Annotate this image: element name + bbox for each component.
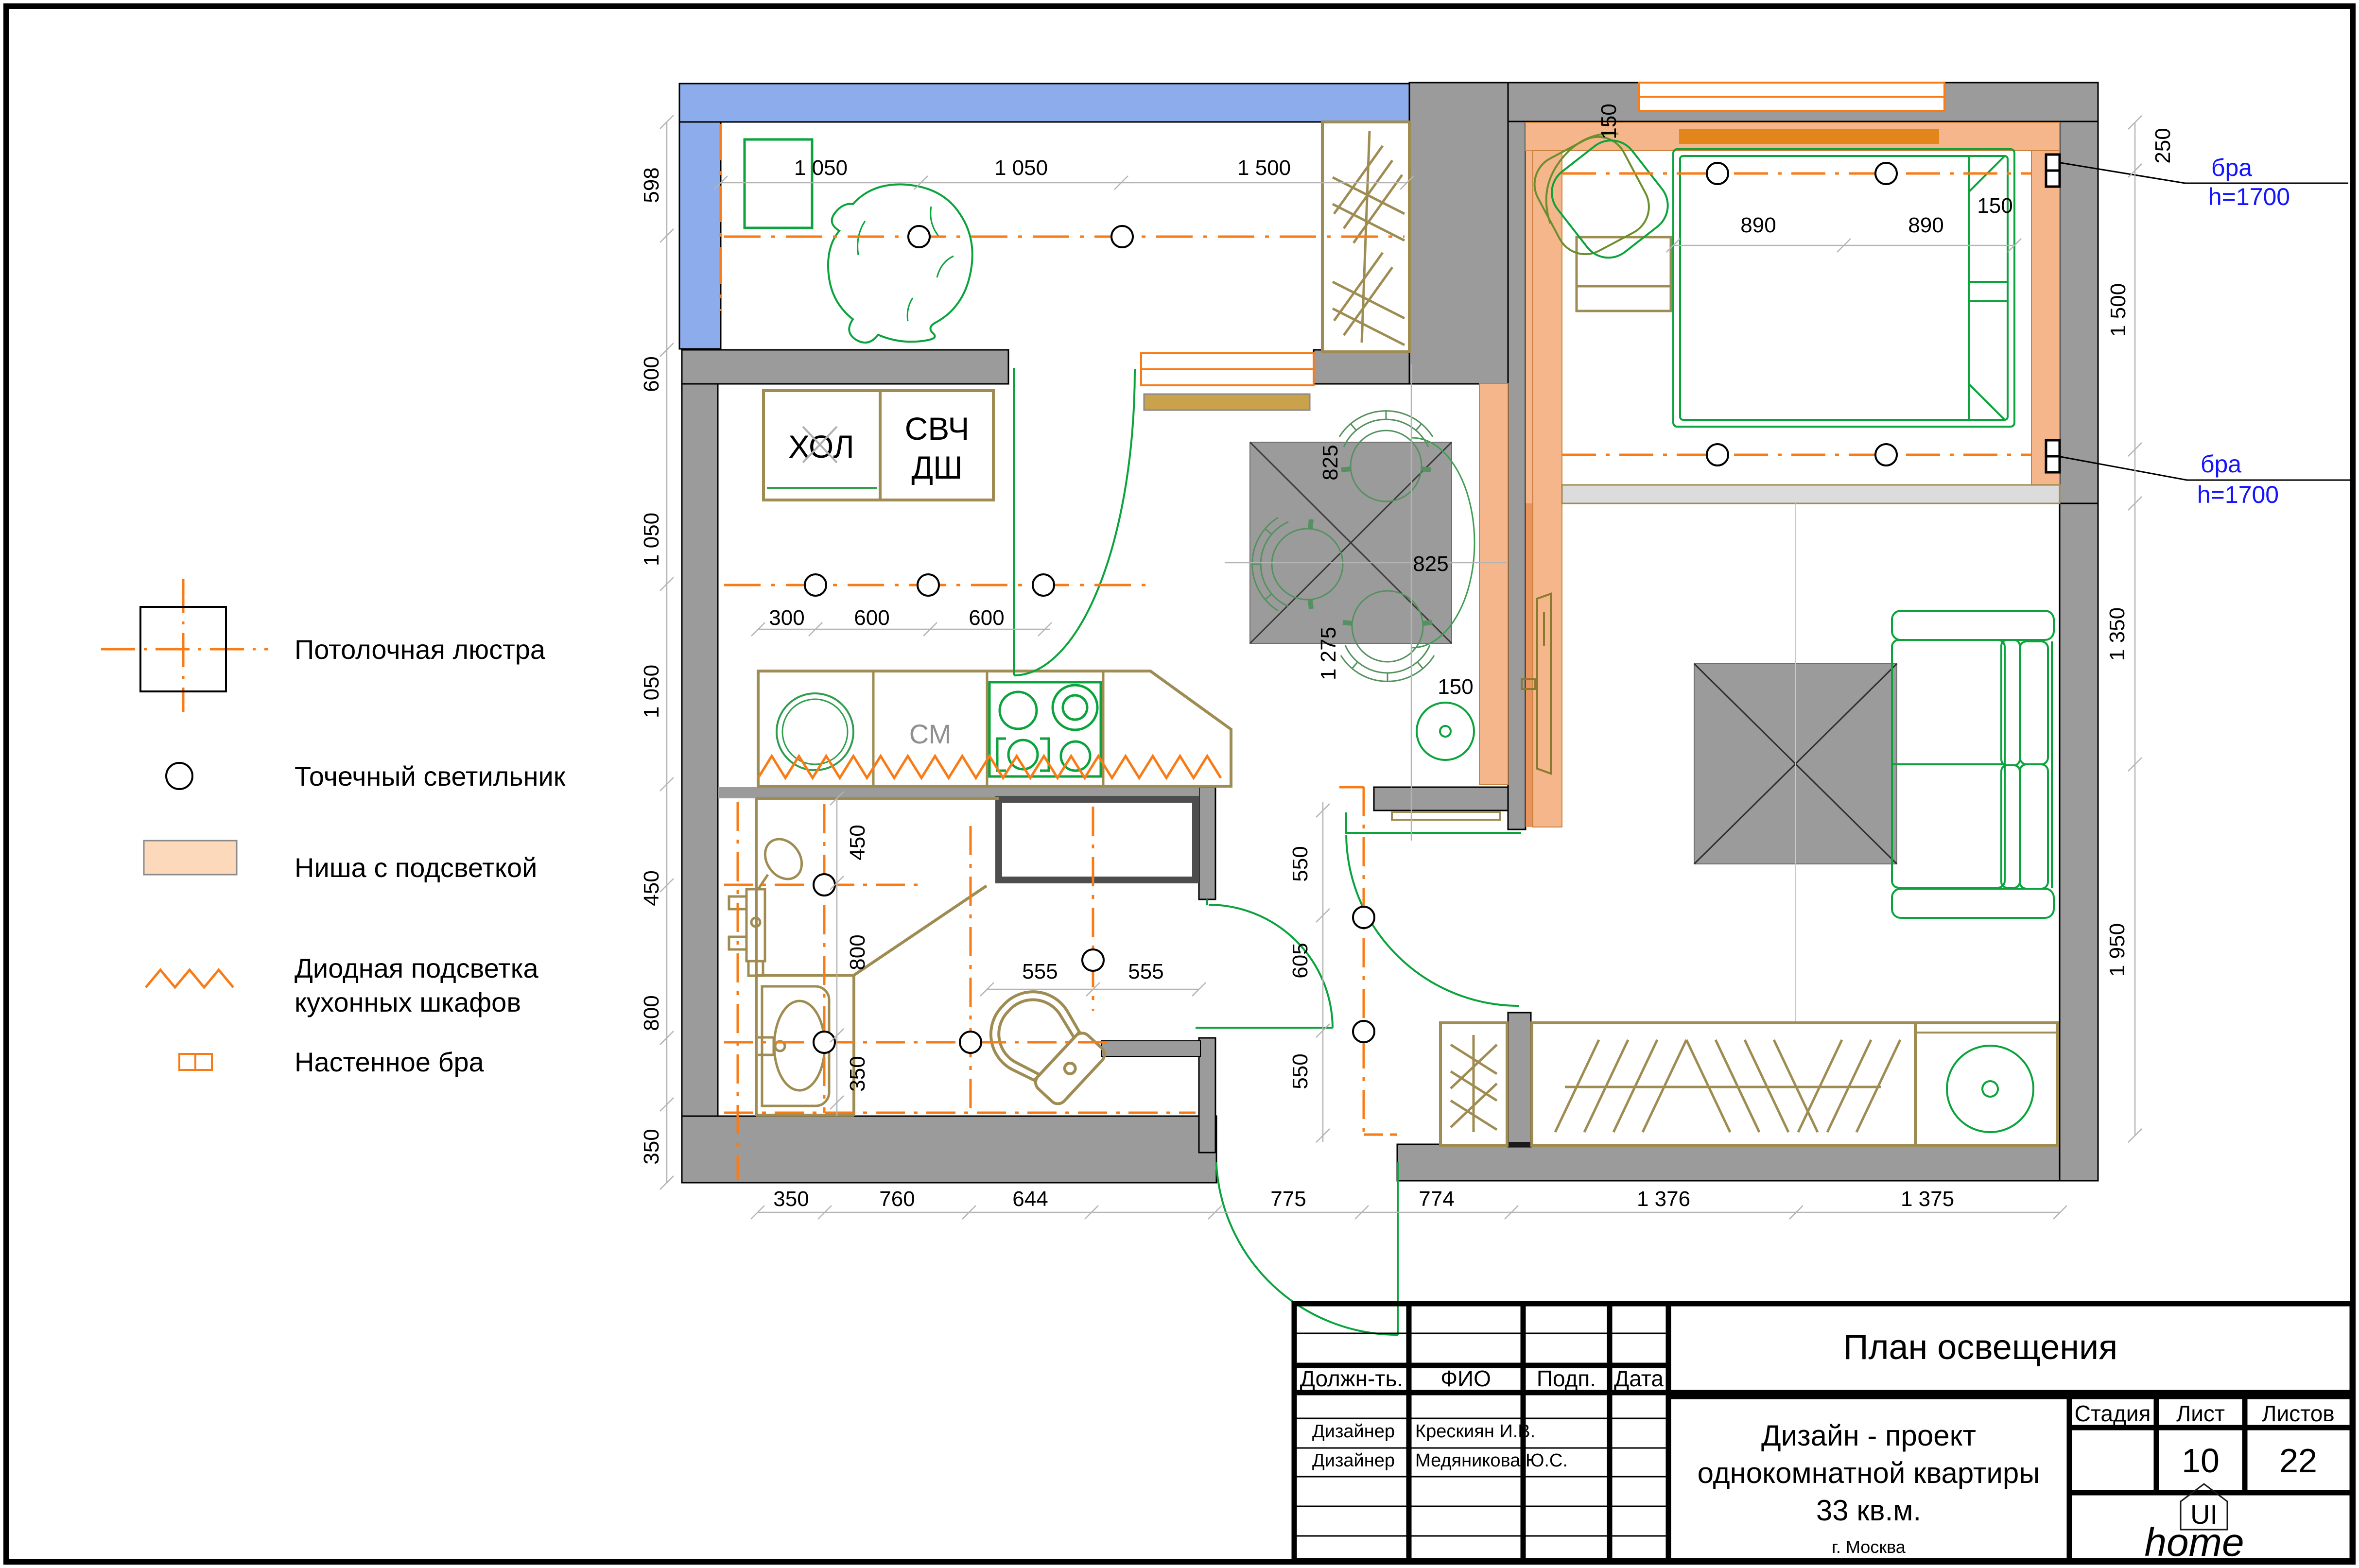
- svg-text:800: 800: [846, 934, 869, 970]
- svg-text:644: 644: [1012, 1187, 1048, 1211]
- svg-text:1 050: 1 050: [794, 156, 848, 180]
- svg-text:555: 555: [1128, 960, 1163, 983]
- svg-text:1 050: 1 050: [640, 665, 663, 718]
- svg-text:бра: бра: [2201, 450, 2241, 478]
- svg-text:1 275: 1 275: [1317, 627, 1340, 680]
- svg-text:1 350: 1 350: [2105, 607, 2129, 661]
- svg-text:825: 825: [1413, 552, 1448, 576]
- svg-text:Листов: Листов: [2262, 1401, 2334, 1426]
- svg-text:1 376: 1 376: [1637, 1187, 1690, 1211]
- svg-text:г. Москва: г. Москва: [1832, 1537, 1906, 1557]
- svg-text:555: 555: [1022, 960, 1058, 983]
- svg-text:кухонных шкафов: кухонных шкафов: [295, 987, 521, 1017]
- svg-text:Ниша с подсветкой: Ниша с подсветкой: [295, 852, 537, 883]
- svg-text:33 кв.м.: 33 кв.м.: [1816, 1494, 1921, 1527]
- svg-text:550: 550: [1288, 846, 1312, 881]
- svg-text:Должн-ть.: Должн-ть.: [1300, 1366, 1403, 1391]
- svg-text:250: 250: [2151, 128, 2175, 163]
- svg-text:h=1700: h=1700: [2208, 183, 2290, 210]
- svg-text:1 050: 1 050: [640, 513, 663, 566]
- svg-text:605: 605: [1288, 943, 1312, 978]
- svg-text:890: 890: [1908, 213, 1943, 237]
- svg-text:150: 150: [1977, 194, 2012, 218]
- svg-text:600: 600: [969, 606, 1004, 630]
- svg-text:1 500: 1 500: [2106, 283, 2130, 337]
- svg-text:1 050: 1 050: [994, 156, 1048, 180]
- svg-text:Дизайнер: Дизайнер: [1312, 1450, 1395, 1471]
- svg-text:350: 350: [640, 1129, 663, 1164]
- svg-text:350: 350: [846, 1056, 869, 1091]
- svg-text:800: 800: [640, 995, 663, 1031]
- svg-text:150: 150: [1597, 103, 1621, 139]
- svg-text:Стадия: Стадия: [2075, 1401, 2151, 1426]
- svg-text:ФИО: ФИО: [1440, 1366, 1491, 1391]
- svg-text:СВЧ: СВЧ: [905, 411, 970, 447]
- svg-text:home: home: [2144, 1520, 2244, 1565]
- svg-text:Дизайнер: Дизайнер: [1312, 1421, 1395, 1442]
- svg-text:774: 774: [1419, 1187, 1454, 1211]
- svg-text:Дизайн - проект: Дизайн - проект: [1761, 1419, 1976, 1452]
- svg-text:Диодная подсветка: Диодная подсветка: [295, 953, 538, 983]
- svg-text:300: 300: [769, 606, 804, 630]
- svg-text:760: 760: [879, 1187, 915, 1211]
- svg-text:ДШ: ДШ: [911, 449, 962, 485]
- svg-text:1 500: 1 500: [1237, 156, 1291, 180]
- svg-text:22: 22: [2279, 1442, 2317, 1480]
- svg-text:однокомнатной квартиры: однокомнатной квартиры: [1698, 1457, 2040, 1489]
- svg-text:h=1700: h=1700: [2197, 481, 2279, 508]
- svg-text:1 375: 1 375: [1901, 1187, 1954, 1211]
- svg-text:Лист: Лист: [2176, 1401, 2225, 1426]
- svg-text:450: 450: [846, 825, 869, 860]
- svg-text:150: 150: [1438, 675, 1473, 699]
- svg-text:План освещения: План освещения: [1843, 1328, 2118, 1367]
- svg-text:890: 890: [1740, 213, 1776, 237]
- svg-text:Настенное бра: Настенное бра: [295, 1047, 485, 1077]
- svg-text:10: 10: [2182, 1442, 2220, 1480]
- svg-text:350: 350: [773, 1187, 809, 1211]
- svg-text:СМ: СМ: [909, 719, 951, 749]
- svg-text:Медяникова Ю.С.: Медяникова Ю.С.: [1415, 1450, 1568, 1471]
- svg-text:598: 598: [640, 167, 663, 203]
- svg-text:1 950: 1 950: [2105, 923, 2129, 977]
- svg-text:Подп.: Подп.: [1537, 1366, 1596, 1391]
- svg-text:600: 600: [640, 356, 663, 392]
- svg-text:Потолочная люстра: Потолочная люстра: [295, 634, 546, 665]
- svg-text:450: 450: [640, 870, 663, 906]
- svg-text:Дата: Дата: [1614, 1366, 1664, 1391]
- svg-text:775: 775: [1270, 1187, 1306, 1211]
- svg-text:825: 825: [1318, 445, 1342, 480]
- svg-text:550: 550: [1288, 1053, 1312, 1089]
- svg-text:Точечный светильник: Точечный светильник: [295, 761, 566, 792]
- svg-text:600: 600: [854, 606, 889, 630]
- svg-text:Крескиян И.В.: Крескиян И.В.: [1415, 1421, 1535, 1442]
- svg-text:бра: бра: [2211, 154, 2252, 181]
